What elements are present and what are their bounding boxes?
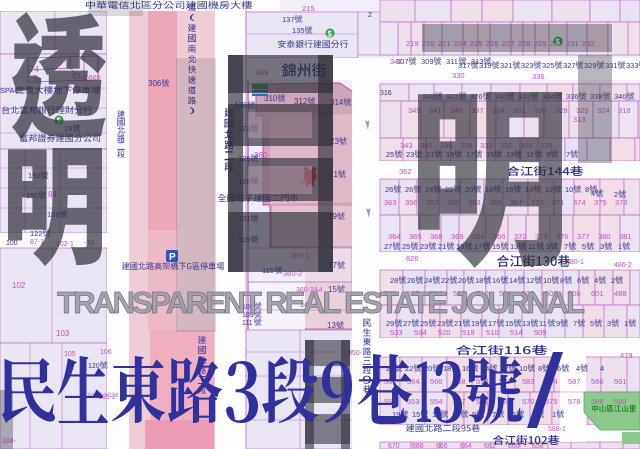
- svg-text:364: 364: [388, 232, 401, 241]
- svg-text:15: 15: [505, 319, 513, 328]
- svg-text:570: 570: [522, 397, 535, 406]
- svg-text:379: 379: [615, 198, 628, 207]
- svg-text:8: 8: [560, 276, 564, 285]
- svg-text:16: 16: [492, 276, 500, 285]
- svg-text:533: 533: [390, 328, 403, 337]
- svg-text:4: 4: [576, 364, 580, 373]
- svg-text:27: 27: [403, 319, 411, 328]
- svg-text:24: 24: [424, 276, 432, 285]
- svg-text:553: 553: [407, 397, 420, 406]
- svg-text:668: 668: [412, 443, 424, 449]
- svg-text:23: 23: [420, 242, 428, 251]
- svg-text:106: 106: [100, 349, 112, 356]
- svg-text:18: 18: [475, 276, 483, 285]
- svg-text:311: 311: [446, 57, 458, 66]
- svg-text:7: 7: [573, 319, 577, 328]
- svg-text:21: 21: [438, 242, 446, 251]
- svg-text:375: 375: [594, 198, 607, 207]
- svg-text:26: 26: [405, 185, 413, 194]
- svg-text:510: 510: [486, 328, 499, 337]
- svg-text:365: 365: [409, 232, 422, 241]
- svg-text:519: 519: [462, 328, 475, 337]
- svg-text:10: 10: [565, 185, 573, 194]
- svg-text:319: 319: [479, 61, 492, 70]
- svg-text:$: $: [328, 30, 333, 39]
- svg-text:323: 323: [521, 61, 534, 70]
- svg-text:520: 520: [438, 328, 451, 337]
- svg-text:103: 103: [56, 329, 70, 338]
- svg-text:TRANSPARENT REAL ESTATE JOU: TRANSPARENT REAL ESTATE JOURNAL: [57, 285, 585, 320]
- svg-text:100: 100: [6, 240, 18, 247]
- svg-text:11: 11: [539, 319, 547, 328]
- svg-text:1: 1: [552, 410, 556, 419]
- svg-text:566: 566: [430, 377, 443, 386]
- svg-text:5: 5: [582, 242, 586, 251]
- svg-text:7: 7: [566, 150, 570, 159]
- svg-text:22: 22: [441, 276, 449, 285]
- svg-text:4: 4: [594, 276, 598, 285]
- svg-text:343: 343: [400, 141, 413, 150]
- svg-text:588: 588: [591, 397, 604, 406]
- svg-text:362: 362: [399, 167, 412, 176]
- svg-text:25: 25: [420, 319, 428, 328]
- svg-text:15: 15: [412, 410, 420, 419]
- svg-text:8: 8: [585, 185, 589, 194]
- svg-text:583: 583: [522, 377, 535, 386]
- svg-text:6: 6: [577, 276, 581, 285]
- svg-text:554: 554: [430, 397, 443, 406]
- svg-text:25: 25: [386, 150, 394, 159]
- svg-text:309: 309: [421, 57, 434, 66]
- svg-text:13: 13: [327, 321, 336, 330]
- svg-text:122: 122: [30, 229, 43, 238]
- svg-text:23: 23: [406, 150, 414, 159]
- svg-text:333: 333: [626, 61, 639, 70]
- svg-text:372: 372: [514, 232, 527, 241]
- svg-text:350-: 350-: [348, 350, 363, 357]
- svg-text:306: 306: [148, 79, 162, 88]
- svg-text:26: 26: [385, 185, 393, 194]
- svg-text:26: 26: [407, 276, 415, 285]
- svg-text:3: 3: [600, 242, 604, 251]
- svg-text:102: 102: [12, 281, 26, 290]
- svg-text:18: 18: [443, 364, 451, 373]
- svg-text:587: 587: [568, 377, 581, 386]
- svg-text:340: 340: [614, 92, 627, 101]
- svg-text:10: 10: [543, 276, 551, 285]
- svg-text:28: 28: [390, 276, 398, 285]
- svg-text:13: 13: [522, 319, 530, 328]
- svg-text:336: 336: [566, 92, 579, 101]
- svg-text:380: 380: [598, 232, 611, 241]
- svg-text:215: 215: [302, 4, 315, 13]
- svg-text:374: 374: [573, 198, 586, 207]
- svg-text:7: 7: [564, 242, 568, 251]
- svg-text:662: 662: [484, 443, 496, 449]
- svg-text:369: 369: [451, 232, 464, 241]
- svg-text:601: 601: [591, 289, 604, 298]
- svg-text:21: 21: [454, 319, 462, 328]
- svg-text:664: 664: [460, 443, 472, 449]
- svg-text:P: P: [169, 252, 176, 263]
- svg-text:20: 20: [458, 276, 466, 285]
- svg-text:219: 219: [406, 39, 419, 48]
- svg-text:8: 8: [538, 364, 542, 373]
- svg-text:10: 10: [519, 364, 527, 373]
- svg-text:25: 25: [402, 242, 410, 251]
- svg-text:479: 479: [620, 351, 633, 360]
- svg-text:3: 3: [607, 319, 611, 328]
- svg-text:27: 27: [384, 242, 392, 251]
- svg-text:23: 23: [437, 319, 445, 328]
- svg-text:356: 356: [405, 198, 418, 207]
- svg-text:368: 368: [430, 232, 443, 241]
- svg-text:347: 347: [390, 57, 403, 66]
- svg-text:336: 336: [532, 72, 545, 81]
- svg-text:29: 29: [386, 319, 394, 328]
- svg-text:486-2: 486-2: [614, 262, 632, 269]
- svg-text:5: 5: [590, 319, 594, 328]
- svg-text:488: 488: [614, 289, 627, 298]
- svg-text:589: 589: [614, 397, 627, 406]
- svg-text:591: 591: [614, 377, 627, 386]
- svg-text:363: 363: [384, 198, 397, 207]
- svg-text:4: 4: [591, 189, 595, 198]
- svg-text:137: 137: [282, 15, 295, 24]
- svg-text:330: 330: [452, 71, 465, 80]
- svg-text:2: 2: [611, 276, 615, 285]
- svg-text:381: 381: [619, 232, 632, 241]
- svg-text:318: 318: [618, 106, 631, 115]
- svg-text:626: 626: [406, 254, 419, 263]
- svg-text:317: 317: [458, 61, 471, 70]
- svg-text:19: 19: [471, 319, 479, 328]
- svg-text:327: 327: [563, 61, 576, 70]
- svg-text:4: 4: [600, 364, 604, 373]
- svg-text:17: 17: [488, 319, 496, 328]
- svg-text:514: 514: [510, 328, 523, 337]
- svg-text:9: 9: [556, 319, 560, 328]
- svg-text:12: 12: [526, 276, 534, 285]
- svg-text:534: 534: [414, 328, 427, 337]
- svg-text:588-1: 588-1: [548, 426, 566, 433]
- svg-text:666: 666: [436, 443, 448, 449]
- svg-text:105: 105: [64, 351, 76, 358]
- svg-text:2: 2: [368, 12, 372, 19]
- svg-text:321: 321: [500, 61, 513, 70]
- svg-text:509: 509: [534, 328, 547, 337]
- svg-text:586: 586: [591, 377, 604, 386]
- svg-text:578: 578: [568, 397, 581, 406]
- svg-text:377: 377: [577, 232, 590, 241]
- svg-text:1: 1: [618, 242, 622, 251]
- svg-text:316: 316: [380, 90, 392, 97]
- svg-text:1: 1: [624, 319, 628, 328]
- svg-text:325: 325: [542, 61, 555, 70]
- svg-text:111: 111: [242, 320, 253, 327]
- svg-text:135: 135: [292, 26, 305, 35]
- svg-text:14: 14: [509, 276, 517, 285]
- svg-text:670: 670: [388, 443, 400, 449]
